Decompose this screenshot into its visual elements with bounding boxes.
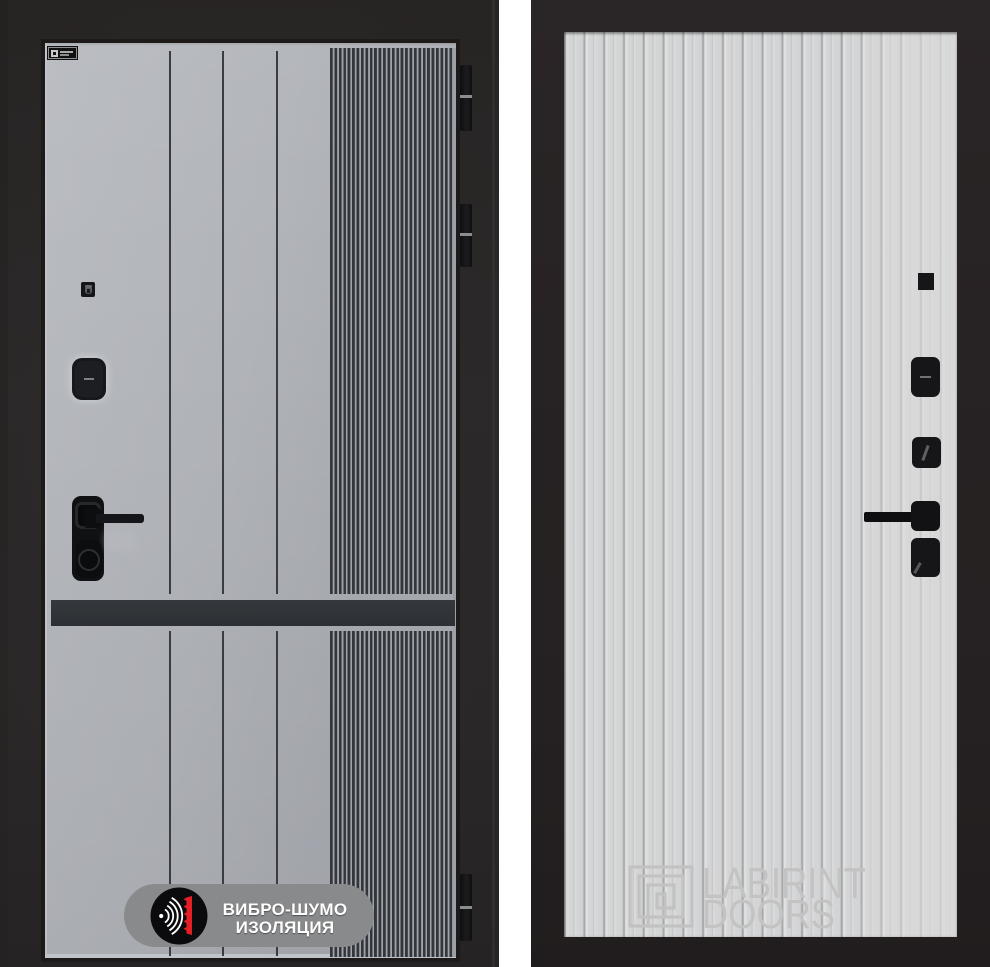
svg-text:DOORS: DOORS xyxy=(702,891,835,932)
